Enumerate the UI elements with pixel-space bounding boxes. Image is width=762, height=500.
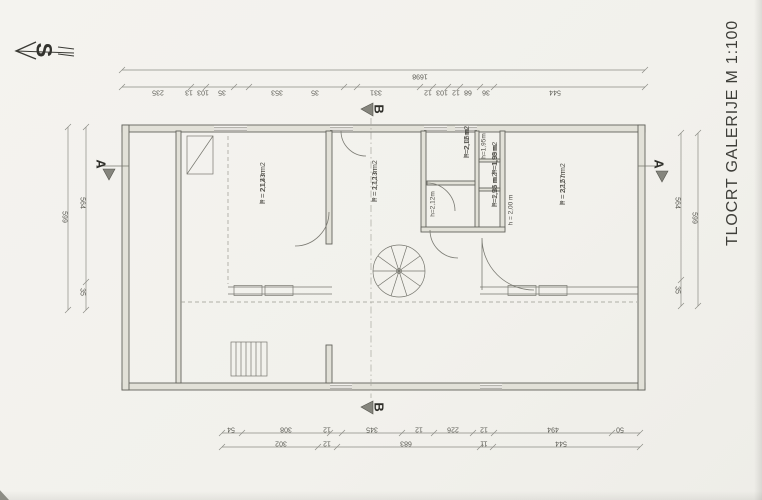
dimension-label: 235 — [152, 89, 164, 96]
dimension-label: 35 — [674, 286, 681, 294]
dimension-label: 353 — [271, 89, 283, 96]
north-equals-mark — [58, 47, 74, 56]
section-b-bottom-triangle — [361, 401, 373, 414]
dimension-label: 12 — [480, 426, 488, 433]
interior-walls — [176, 131, 505, 383]
dimension-label: 683 — [400, 440, 412, 447]
dimension-label: 68 — [464, 89, 472, 96]
height-label: h=2,12m — [430, 191, 437, 216]
floor-plan-drawing: A A B B S — [0, 0, 762, 500]
dimension-label: 50 — [616, 426, 624, 433]
dimension-label: 345 — [366, 426, 378, 433]
north-letter: S — [32, 43, 57, 58]
dimension-label: 103 — [197, 89, 209, 96]
dimension-label: 12 — [452, 89, 460, 96]
dimension-label: 12 — [424, 89, 432, 96]
dimension-label: 599 — [61, 211, 68, 223]
void-dashed-lines — [181, 136, 637, 302]
dimension-label: 36 — [482, 89, 490, 96]
dimension-label: 103 — [436, 89, 448, 96]
chimney-shaft — [187, 136, 213, 174]
dimension-label: 35 — [218, 89, 226, 96]
north-arrow: S — [16, 42, 74, 59]
dimension-label: 308 — [280, 426, 292, 433]
dimension-label: 54 — [227, 426, 235, 433]
section-b-top-label: B — [372, 104, 387, 113]
paper-edge-bottom — [0, 491, 762, 500]
dimension-label: 564 — [79, 197, 86, 209]
dimension-label: 13 — [185, 89, 193, 96]
dimension-label: 302 — [275, 440, 287, 447]
dimension-label: 564 — [674, 197, 681, 209]
drawing-title: TLOCRT GALERIJE M 1:100 — [724, 20, 742, 246]
dimension-label: 35 — [311, 89, 319, 96]
paper-edge-right — [754, 0, 762, 500]
height-label: h = 2,00 m — [508, 195, 515, 226]
height-label: h=1,95m — [481, 133, 488, 158]
floor-plan-sheet: A A B B S 169823513103353533533112103126… — [0, 0, 762, 500]
dimension-label: 12 — [415, 426, 423, 433]
section-a-right-triangle — [656, 171, 668, 182]
dimension-label: 35 — [79, 288, 86, 296]
section-b-top-triangle — [361, 103, 373, 116]
section-a-left-triangle — [103, 169, 115, 180]
section-b-bottom-label: B — [372, 402, 387, 411]
dimension-label: 12 — [323, 440, 331, 447]
dimension-lines — [65, 67, 701, 450]
dimension-label: 11 — [480, 440, 487, 447]
dimension-label: 544 — [555, 440, 567, 447]
dimension-label: 12 — [323, 426, 331, 433]
section-a-right-label: A — [652, 159, 667, 169]
dimension-label: 1698 — [412, 73, 428, 80]
dimension-label: 494 — [547, 426, 559, 433]
dimension-label: 331 — [370, 89, 382, 96]
window-openings — [214, 126, 502, 390]
dimension-label: 599 — [691, 212, 698, 224]
lower-stair-hatch — [231, 342, 267, 376]
spiral-stair-icon — [373, 245, 425, 297]
sill-walls — [228, 286, 638, 296]
dimension-label: 544 — [549, 89, 561, 96]
section-a-left-label: A — [94, 159, 109, 169]
dimension-label: 226 — [447, 426, 459, 433]
